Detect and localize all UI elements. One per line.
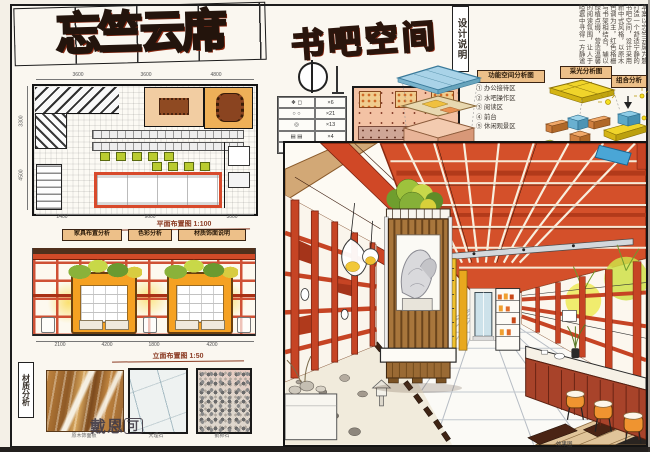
- central-display-column: [375, 179, 463, 393]
- note-column: 色调为主，红色格栅: [608, 4, 615, 70]
- note-column: 本案以忘竺云席为题: [639, 4, 646, 70]
- book-shelf: [496, 289, 520, 351]
- plan-reading-table-zone: [94, 172, 222, 208]
- note-column: 喧嚣中寻得一方静谧: [577, 4, 584, 70]
- booth-drawer: [201, 320, 225, 330]
- plan-stairs: [36, 164, 62, 210]
- booth-shelves: [176, 285, 224, 323]
- glass-roof-layer: [398, 66, 480, 94]
- elevation-caption: 立面布置图 1:50: [112, 350, 244, 362]
- dim-label: 3600: [140, 72, 151, 78]
- legend-qty: ×13: [315, 119, 346, 130]
- north-arrow-icon: [298, 62, 328, 92]
- elevation-drawing: [32, 248, 256, 336]
- plan-tag: 家具布置分析: [62, 229, 122, 241]
- booth-shelf-unit: [71, 272, 137, 334]
- legend-symbol: ◎: [278, 119, 315, 130]
- legend-qty: ×21: [315, 108, 346, 119]
- plan-meeting-room: [204, 87, 253, 129]
- floor-plan: [32, 84, 258, 216]
- plan-dim-line-left: [27, 86, 28, 210]
- plan-left-wedges: [35, 113, 67, 149]
- booth-shelf-unit: [167, 272, 233, 334]
- note-column: 与书架相结合，辅以: [600, 4, 607, 70]
- chair-sketch: [237, 317, 251, 333]
- dim-label: 2400: [56, 214, 67, 220]
- chair-sketch: [143, 317, 157, 333]
- chair-sketch: [41, 317, 55, 333]
- plan-cushion-row: [152, 162, 210, 171]
- presentation-board: 忘竺云席 书吧空间 设计说明 本案以忘竺云席为题 打造一个舒适宁静的 书吧空间，…: [0, 0, 650, 452]
- dim-label: 2100: [54, 342, 65, 348]
- ceiling-cell: [359, 91, 381, 108]
- note-column: 绿植点缀，营造温馨: [592, 4, 599, 70]
- dim-label: 4200: [206, 342, 217, 348]
- perspective-svg: [285, 143, 646, 445]
- render-caption: 效果图: [556, 440, 573, 448]
- dim-label: 4200: [101, 342, 112, 348]
- dim-label: 3600: [72, 72, 83, 78]
- dim-label: 4800: [210, 72, 221, 78]
- note-column: 新中式风格，以原木: [616, 4, 623, 70]
- note-column: 书吧空间，设计采用: [624, 4, 631, 70]
- booth-shelves: [80, 285, 128, 323]
- material-swatch-pebble: [196, 368, 252, 434]
- materials-label: 材质分析: [18, 362, 34, 418]
- wall-frame: [562, 310, 576, 321]
- floor-lamp-sketch-icon: [336, 66, 348, 94]
- plan-right-rooms: [224, 142, 252, 208]
- plan-tag: 材质饰面说明: [178, 229, 246, 241]
- plan-counter-row: [92, 130, 244, 139]
- plan-dim-line-top: [36, 79, 254, 80]
- design-note-label: 设计说明: [452, 6, 469, 72]
- plan-shelving-units: [35, 87, 119, 114]
- layout-layer: [402, 96, 476, 116]
- elevation-dim-line: [36, 341, 254, 342]
- plan-cushion-row: [100, 152, 174, 161]
- main-title: 忘竺云席: [13, 2, 266, 67]
- booth-drawer: [175, 320, 199, 330]
- dim-label: 4500: [19, 169, 25, 180]
- booth-drawer: [79, 320, 103, 330]
- legend-qty: ×6: [315, 97, 346, 108]
- note-column: 的阅读氛围，让人于: [585, 4, 592, 70]
- legend-symbol: ○ ○: [278, 108, 315, 119]
- dim-label: 1800: [148, 342, 159, 348]
- yellow-slab: [550, 80, 614, 103]
- legend-symbol: ❖ ◻: [278, 97, 315, 108]
- plan-office-room: [144, 87, 204, 127]
- perspective-rendering: [283, 141, 648, 447]
- booth-drawer: [105, 320, 129, 330]
- dim-label: 3300: [19, 115, 25, 126]
- note-column: 打造一个舒适宁静的: [631, 4, 638, 70]
- plan-counter-row: [92, 142, 244, 151]
- swatch-label: 鹅卵石: [196, 432, 248, 439]
- photo-edge-bottom: [0, 447, 650, 452]
- design-note-text: 本案以忘竺云席为题 打造一个舒适宁静的 书吧空间，设计采用 新中式风格，以原木 …: [470, 4, 646, 70]
- elevation-ground-line: [33, 334, 255, 336]
- watermark-signature: 戴恩可: [90, 413, 143, 437]
- plan-tag: 色彩分析: [128, 229, 172, 241]
